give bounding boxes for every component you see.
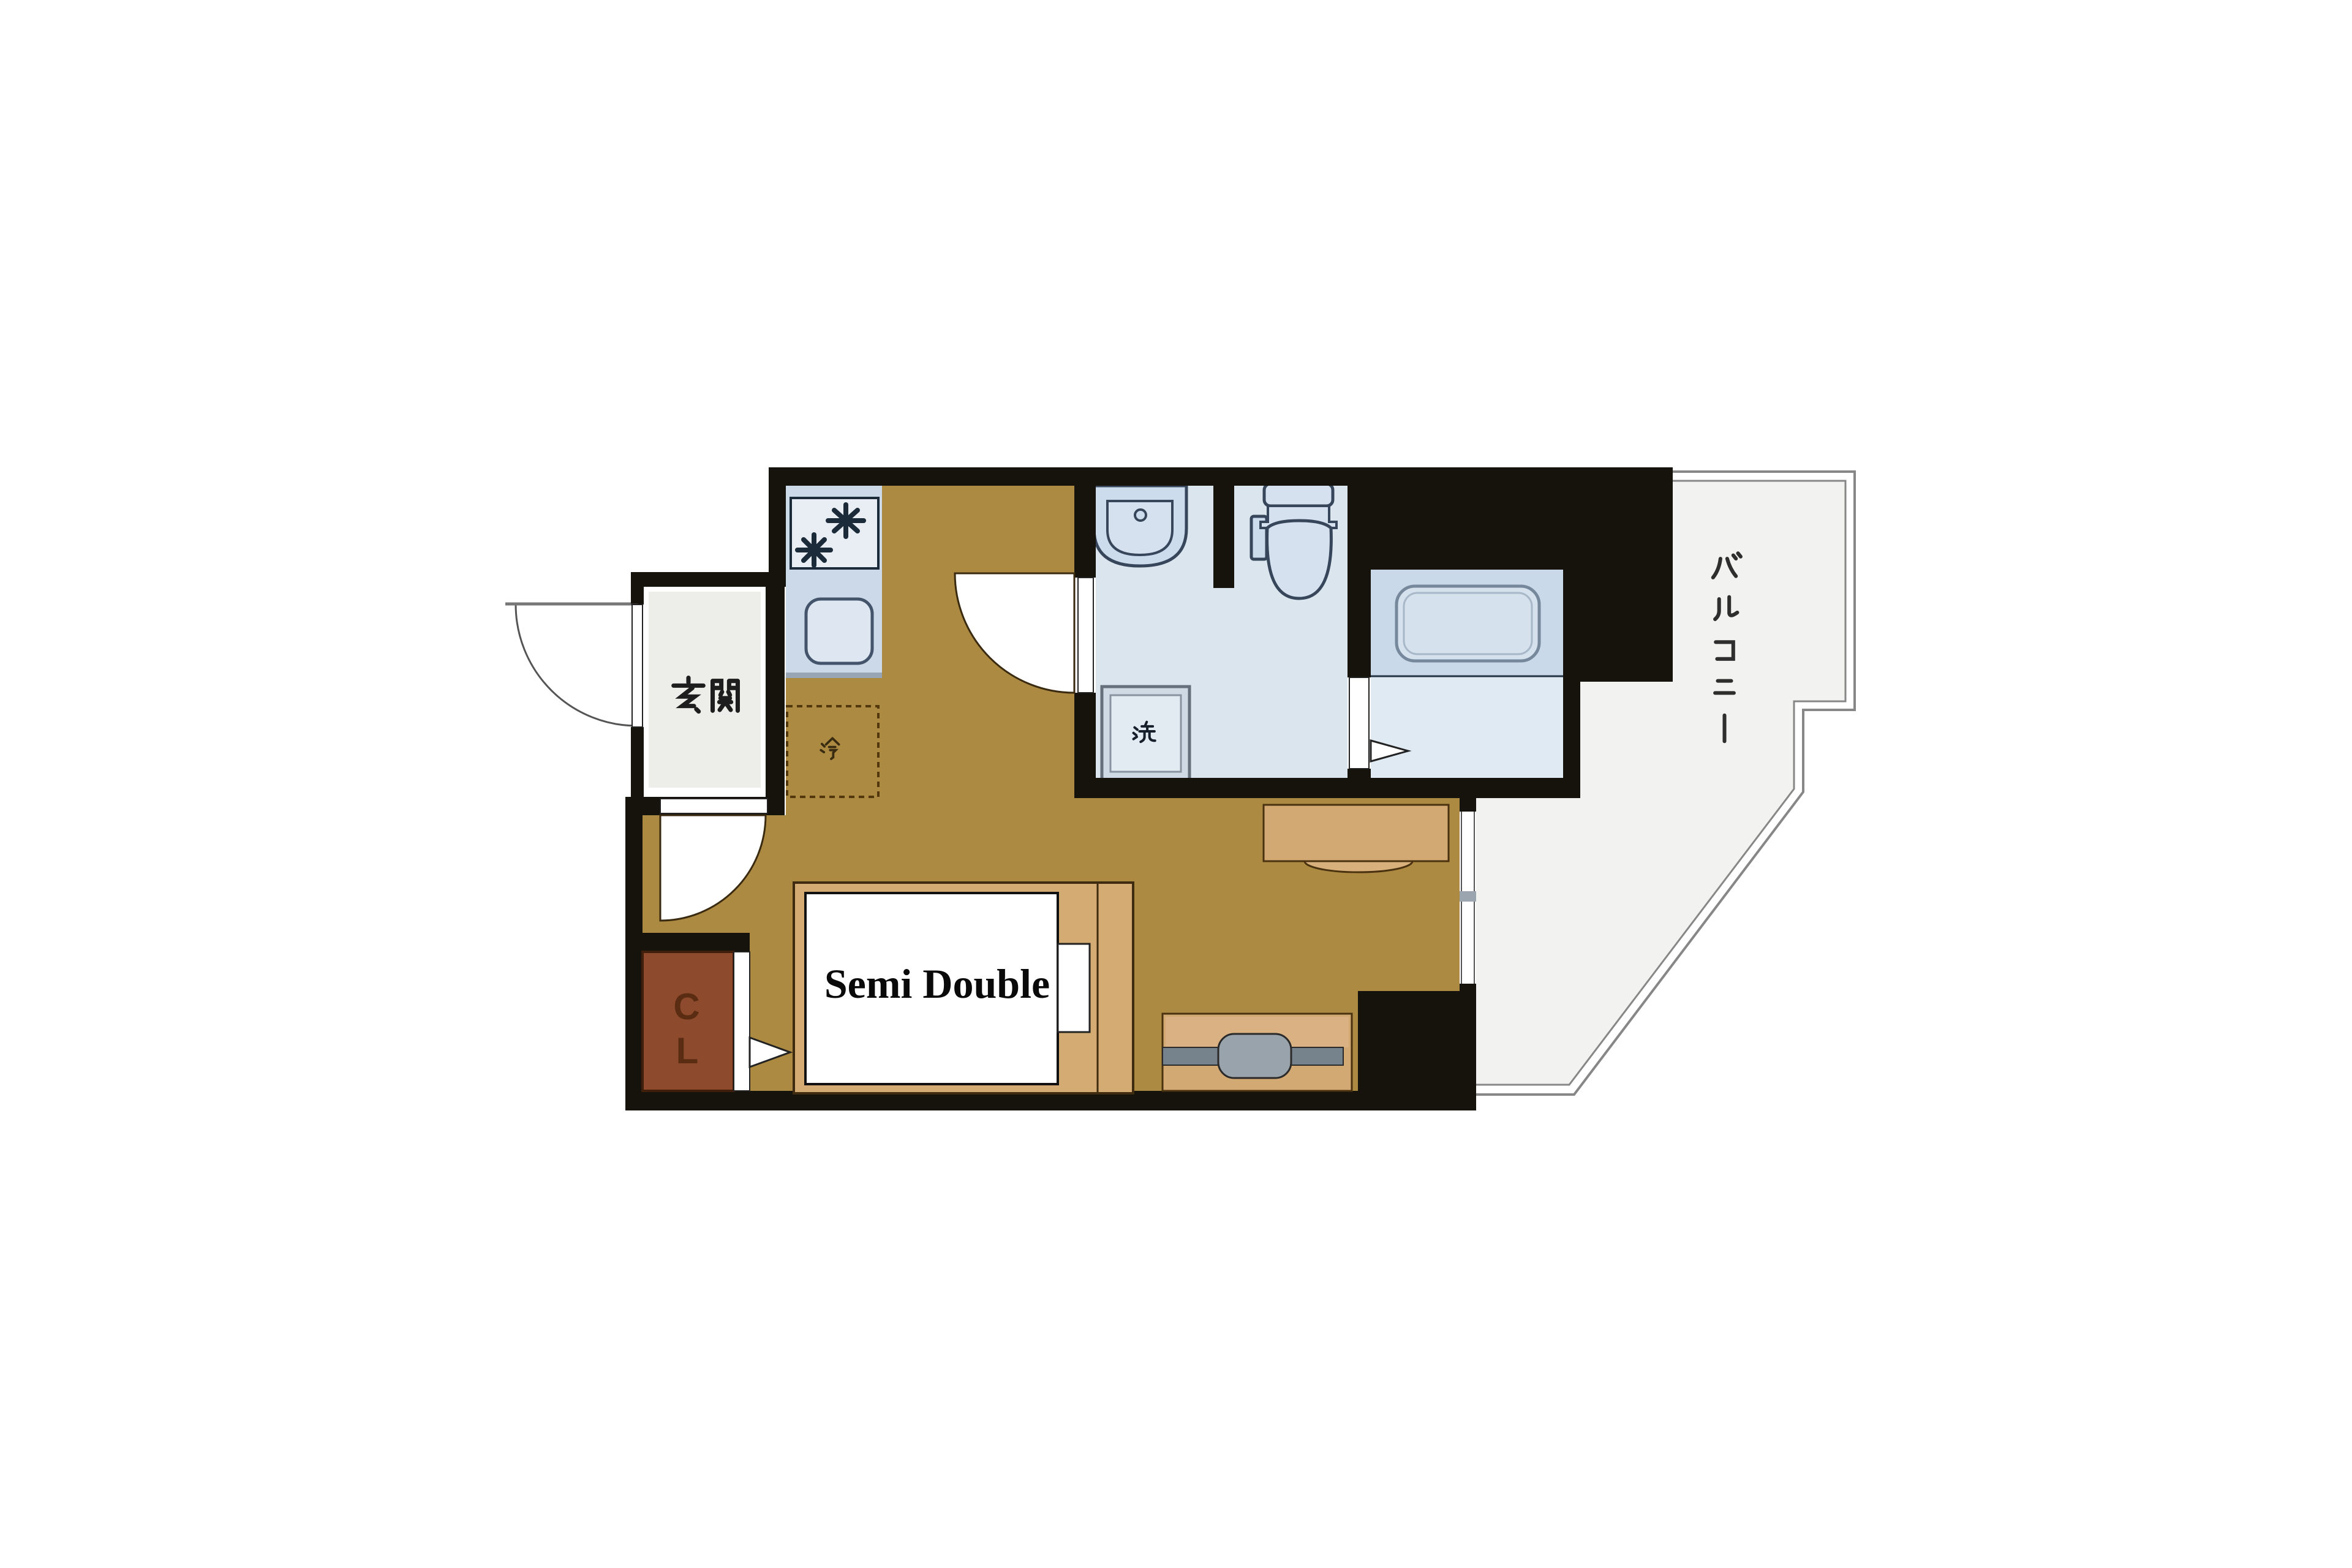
svg-text:Semi Double: Semi Double bbox=[824, 960, 1050, 1007]
svg-text:L: L bbox=[676, 1030, 699, 1071]
svg-text:C: C bbox=[673, 986, 699, 1027]
